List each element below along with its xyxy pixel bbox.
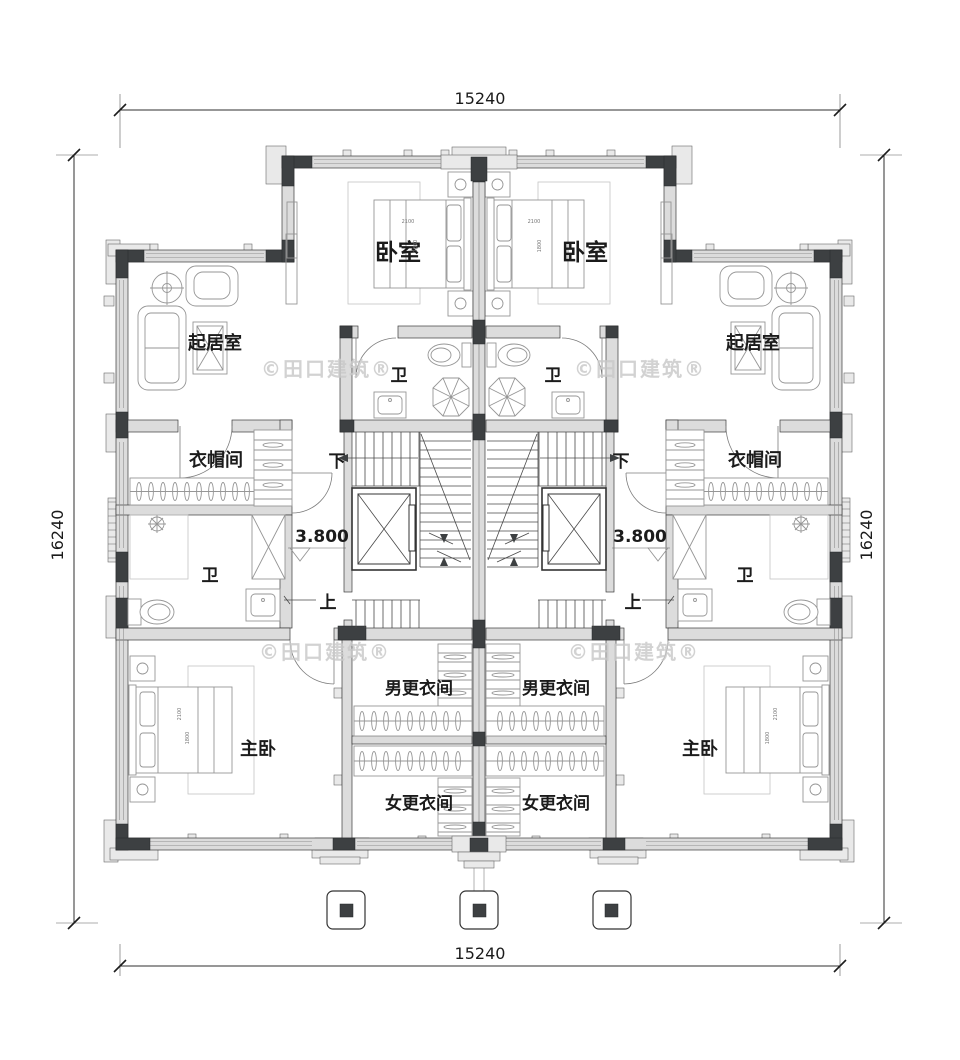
watermark-upper-left: ©田口建筑®	[261, 357, 393, 381]
level-label-left: 3.800	[295, 527, 349, 547]
room-label-living-right: 起居室	[725, 332, 780, 354]
room-label-dressing-female-right: 女更衣间	[522, 793, 590, 814]
watermark-upper-right: ©田口建筑®	[574, 357, 706, 381]
stair-label-up-left: 上	[320, 593, 337, 613]
watermark-lower-right: ©田口建筑®	[568, 640, 700, 664]
floor-plan-page: 15240 15240 16240 16240 卧室 卧室 起居室 起居室 卫 …	[0, 0, 960, 1060]
room-label-dressing-female-left: 女更衣间	[385, 793, 453, 814]
room-label-dressing-male-right: 男更衣间	[522, 678, 590, 699]
bed-dim-depth-upper-right: 1800	[537, 240, 543, 253]
bed-dim-width-upper-left: 2100	[402, 219, 415, 225]
party-wall	[473, 156, 485, 850]
bed-dim-width-master-right: 2100	[773, 708, 779, 721]
room-label-master-left: 主卧	[240, 738, 276, 760]
stair-label-down-left: 下	[329, 452, 346, 472]
room-label-bedroom-right: 卧室	[562, 239, 608, 266]
floor-plan-svg: 15240 15240 16240 16240 卧室 卧室 起居室 起居室 卫 …	[0, 0, 960, 1060]
center-porch-bottom	[452, 836, 506, 929]
elevator	[352, 488, 416, 570]
room-label-living-left: 起居室	[187, 332, 242, 354]
bed-dim-depth-upper-left: 1800	[413, 240, 419, 253]
bed-dim-depth-master-right: 1800	[765, 732, 771, 745]
room-label-bath-lower-right: 卫	[737, 566, 754, 586]
column-footing	[327, 891, 365, 929]
bed-dim-width-upper-right: 2100	[528, 219, 541, 225]
dim-left: 16240	[48, 510, 67, 561]
room-label-bath-lower-left: 卫	[202, 566, 219, 586]
room-label-master-right: 主卧	[682, 738, 718, 760]
room-label-cloakroom-right: 衣帽间	[728, 449, 782, 471]
bed-dim-width-master-left: 2100	[177, 708, 183, 721]
level-marker	[288, 548, 346, 561]
bed-dim-depth-master-left: 1800	[185, 732, 191, 745]
dim-top: 15240	[455, 89, 506, 108]
dim-bottom: 15240	[455, 944, 506, 963]
watermark-lower-left: ©田口建筑®	[259, 640, 391, 664]
stair-label-down-right: 下	[613, 452, 630, 472]
level-label-right: 3.800	[613, 527, 667, 547]
stair-label-up-right: 上	[625, 593, 642, 613]
room-label-cloakroom-left: 衣帽间	[189, 449, 243, 471]
room-label-bath-upper-left: 卫	[391, 366, 408, 386]
room-label-dressing-male-left: 男更衣间	[385, 678, 453, 699]
dim-right: 16240	[857, 510, 876, 561]
master-bedroom-furniture	[129, 656, 254, 802]
room-label-bath-upper-right: 卫	[545, 366, 562, 386]
